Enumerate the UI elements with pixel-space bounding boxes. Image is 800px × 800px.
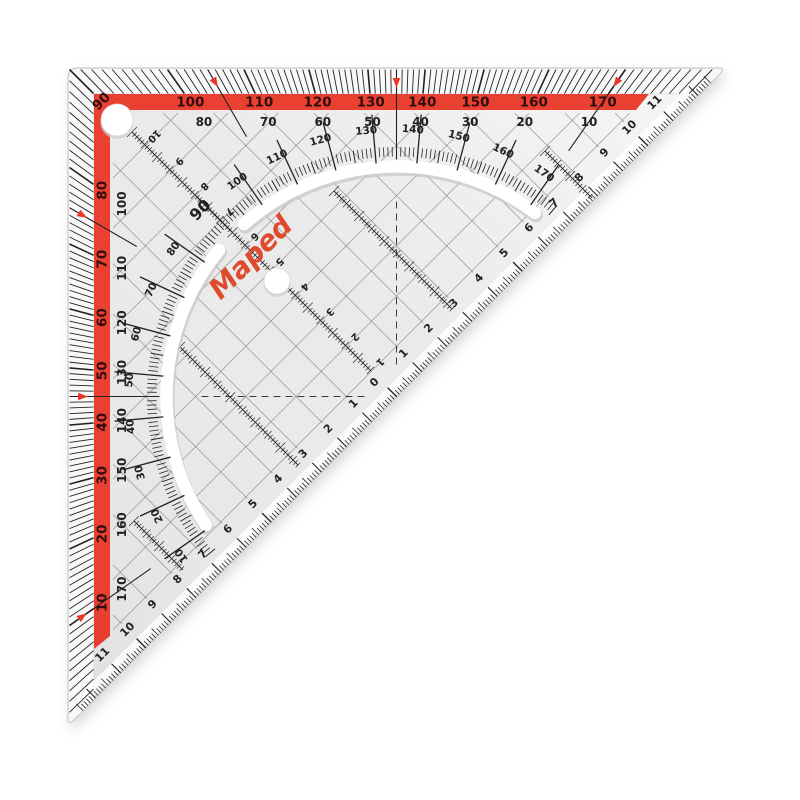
- band-number: 80: [94, 181, 110, 200]
- arc-number: 130: [355, 124, 378, 138]
- complement-number: 70: [260, 115, 277, 129]
- band-number: 160: [520, 94, 548, 110]
- complement-number: 100: [115, 191, 129, 216]
- band-number: 70: [94, 250, 110, 269]
- complement-number: 60: [314, 115, 331, 129]
- arc-number: 50: [123, 372, 136, 388]
- band-number: 140: [408, 94, 436, 110]
- band-number: 40: [94, 413, 110, 432]
- band-number: 110: [245, 94, 273, 110]
- complement-number: 150: [115, 458, 129, 483]
- band-number: 120: [303, 94, 331, 110]
- band-number: 130: [357, 94, 385, 110]
- arc-number: 140: [401, 123, 424, 137]
- band-number: 50: [94, 361, 110, 380]
- corner-hole: [101, 104, 133, 136]
- arc-number: 40: [124, 419, 137, 435]
- complement-number: 30: [462, 115, 479, 129]
- finger-hole: [264, 268, 290, 294]
- band-number: 30: [94, 466, 110, 485]
- band-number: 60: [94, 308, 110, 327]
- band-number: 20: [94, 524, 110, 543]
- complement-number: 160: [115, 512, 129, 537]
- complement-number: 120: [115, 310, 129, 335]
- complement-number: 20: [516, 115, 533, 129]
- complement-number: 80: [196, 115, 213, 129]
- complement-number: 110: [115, 256, 129, 281]
- set-square: 112233445566778899101011110 12345678910 …: [68, 68, 723, 723]
- product-photo: 112233445566778899101011110 12345678910 …: [0, 0, 800, 800]
- set-square-image: 112233445566778899101011110 12345678910 …: [0, 0, 800, 800]
- band-number: 150: [461, 94, 489, 110]
- band-number: 100: [176, 94, 204, 110]
